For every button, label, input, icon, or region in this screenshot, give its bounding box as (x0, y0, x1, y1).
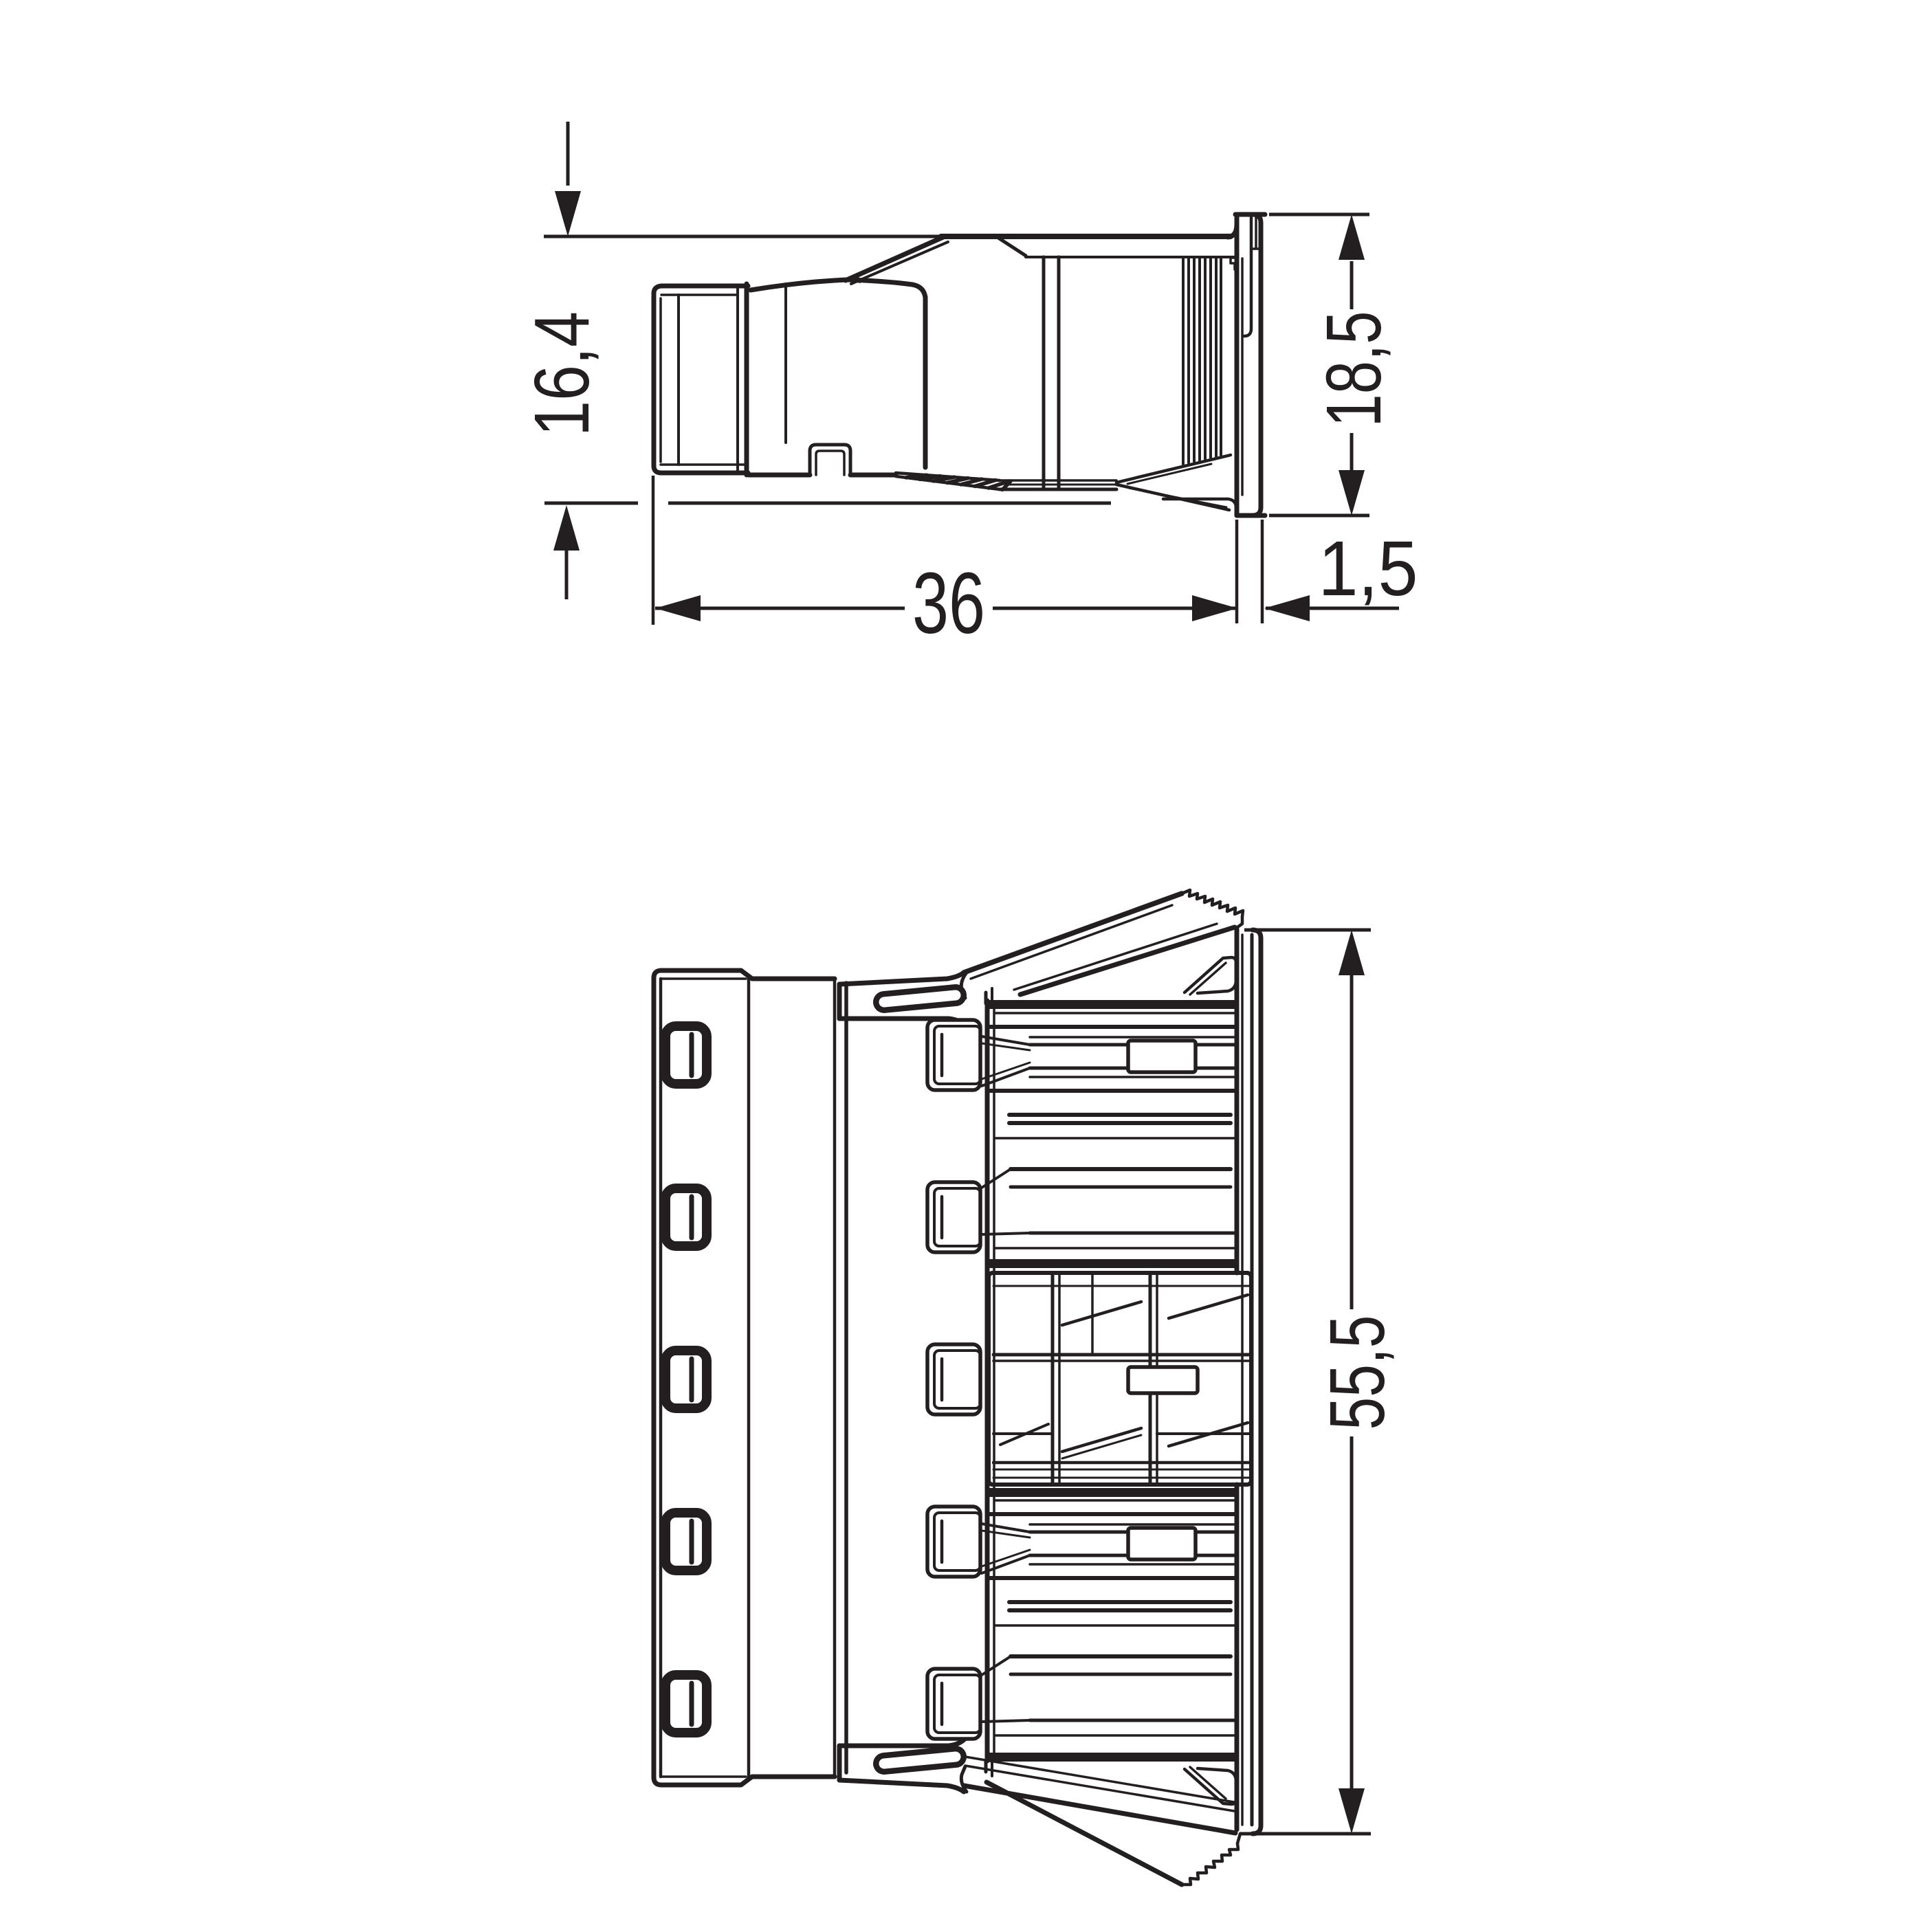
svg-text:36: 36 (912, 555, 985, 652)
svg-text:18,5: 18,5 (1310, 311, 1397, 428)
svg-text:16,4: 16,4 (518, 311, 605, 436)
svg-text:1,5: 1,5 (1319, 525, 1418, 612)
svg-text:55,5: 55,5 (1314, 1315, 1400, 1430)
